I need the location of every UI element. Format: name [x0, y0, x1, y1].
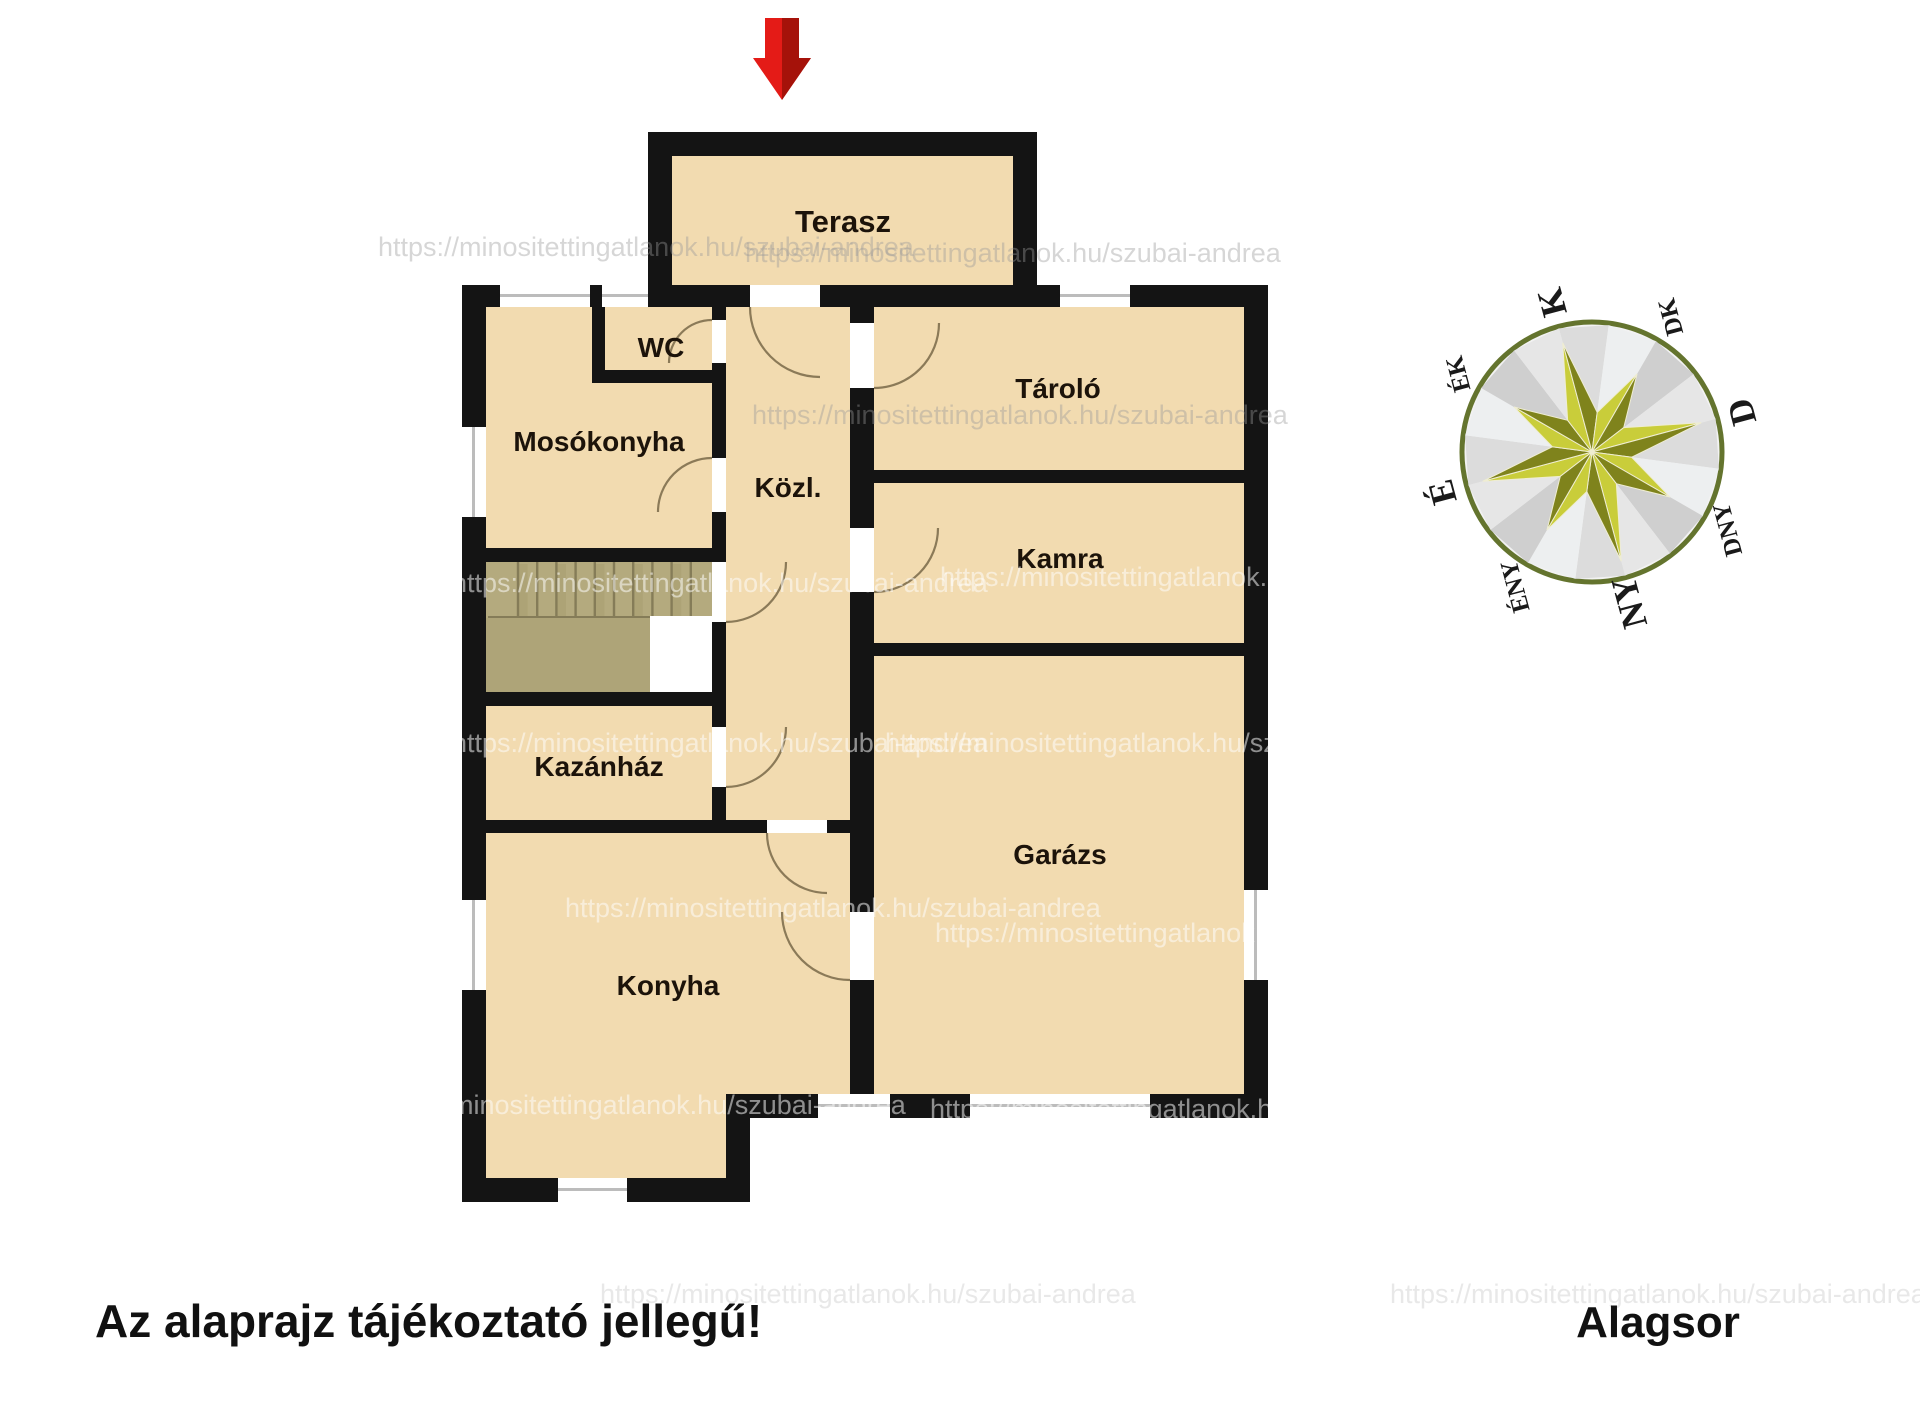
label-wc: WC	[638, 332, 685, 363]
door-gap-konyha	[767, 820, 827, 833]
label-kozl: Közl.	[755, 472, 822, 503]
watermark-text: https://minositettingatlanok.hu/szubai-a…	[930, 1094, 1467, 1124]
window	[462, 900, 486, 990]
label-konyha: Konyha	[617, 970, 720, 1001]
watermark-text: https://minositettingatlanok.hu/szubai-a…	[452, 568, 989, 598]
window	[558, 1178, 627, 1202]
watermark-text: https://minositettingatlanok.hu/szubai-a…	[885, 728, 1422, 758]
watermark-text: https://minositettingatlanok.hu/szubai-a…	[940, 562, 1477, 592]
wall-wc-bottom	[592, 370, 726, 383]
compass-label-n: É	[1420, 475, 1465, 509]
compass-label-sw: DNY	[1708, 500, 1748, 559]
wall-kazanhaz-bottom	[486, 820, 726, 833]
window	[1060, 285, 1130, 307]
compass-label-s: D	[1719, 394, 1764, 429]
wall-kamra-garazs	[874, 643, 1244, 656]
wall-step	[726, 1118, 750, 1202]
label-garazs: Garázs	[1013, 839, 1106, 870]
label-mosokonyha: Mosókonyha	[513, 426, 685, 457]
compass-label-e: K	[1529, 284, 1575, 321]
wall-terasz-top	[648, 132, 1037, 156]
watermark-text: https://minositettingatlanok.hu/szubai-a…	[935, 918, 1472, 948]
watermark-text: https://minositettingatlanok.hu/szubai-a…	[752, 400, 1289, 430]
stair-void	[650, 616, 712, 692]
compass-label-ne: ÉK	[1440, 352, 1477, 395]
exterior-notch	[750, 1118, 874, 1202]
window	[462, 427, 486, 517]
door-gap-mosokonyha	[712, 458, 726, 512]
wall-stairs-bottom	[486, 692, 712, 706]
floorplan-canvas: Terasz WC Mosókonyha Közl. Tároló Kamra …	[0, 0, 1920, 1415]
door-gap-wc	[712, 320, 726, 363]
wall-mosokonyha-bottom	[486, 548, 712, 562]
compass-rose: É ÉK K DK D DNY NY ÉNY	[1379, 243, 1808, 672]
window	[500, 285, 590, 307]
disclaimer-text: Az alaprajz tájékoztató jellegű!	[95, 1295, 762, 1347]
door-gap-tarolo	[850, 323, 874, 388]
watermark-text: https://minositettingatlanok.hu/szubai-a…	[745, 238, 1282, 268]
entrance-arrow-icon	[753, 18, 811, 100]
stair-lower-flight	[486, 618, 650, 692]
compass-label-w: NY	[1603, 572, 1655, 633]
wall-tarolo-kamra	[874, 470, 1244, 483]
compass-label-se: DK	[1653, 295, 1689, 339]
wall-terasz-left	[648, 156, 672, 285]
window	[602, 285, 648, 307]
door-gap-entrance	[750, 285, 820, 307]
watermark-text: https://minositettingatlanok.hu/szubai-a…	[370, 1090, 907, 1120]
entrance-arrow-shade	[782, 18, 811, 100]
level-title: Alagsor	[1576, 1298, 1740, 1347]
